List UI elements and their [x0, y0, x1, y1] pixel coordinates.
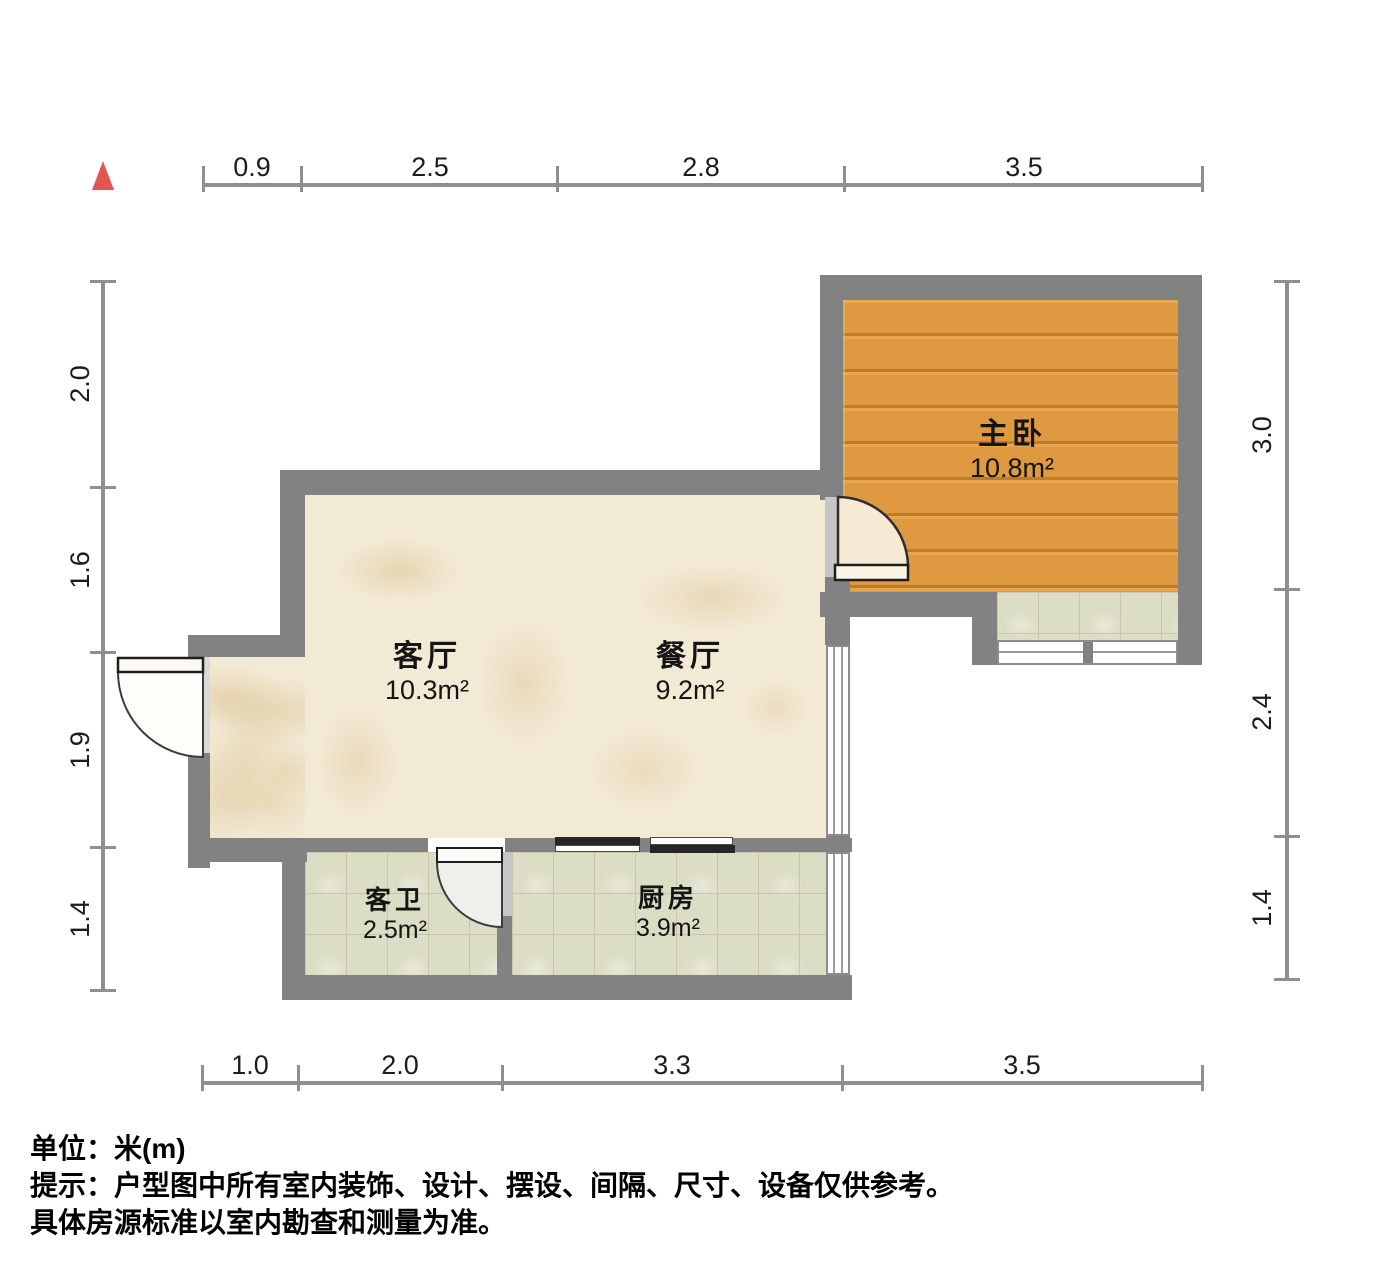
- dim-tick: [90, 989, 116, 992]
- wall-bathroom-left: [282, 860, 305, 975]
- sliding-door-panel: [555, 837, 640, 845]
- sliding-door-panel: [650, 845, 735, 853]
- sliding-door-panel: [650, 837, 733, 845]
- room-label-bathroom: 客卫 2.5m²: [325, 885, 465, 945]
- dim-label-bottom: 3.3: [640, 1051, 704, 1079]
- sliding-door-panel: [555, 845, 640, 852]
- footer-tip-line2: 具体房源标准以室内勘查和测量为准。: [30, 1204, 954, 1241]
- dim-label-right: 3.0: [1248, 403, 1276, 467]
- bedroom-bay-window: [997, 640, 1178, 665]
- kitchen-window: [826, 852, 850, 975]
- wall-bottom: [282, 975, 852, 1000]
- dim-tick: [841, 1065, 844, 1091]
- room-name: 客卫: [325, 885, 465, 915]
- room-area: 9.2m²: [610, 674, 770, 706]
- room-label-dining: 餐厅 9.2m²: [610, 640, 770, 706]
- room-area: 10.8m²: [932, 452, 1092, 484]
- dim-tick: [1274, 280, 1300, 283]
- dim-tick: [843, 166, 846, 192]
- room-name: 客厅: [347, 640, 507, 674]
- wall-living-left-upper: [280, 470, 305, 657]
- dim-tick: [1274, 588, 1300, 591]
- dim-tick: [90, 846, 116, 849]
- wall-bottom-left-band: [188, 838, 307, 862]
- dim-line-bottom: [202, 1081, 1202, 1085]
- wall-left-jog: [188, 635, 305, 657]
- room-label-living: 客厅 10.3m²: [347, 640, 507, 706]
- dim-label-left: 1.4: [66, 887, 94, 951]
- wall-living-top: [280, 470, 838, 495]
- entry-alcove-floor: [210, 657, 305, 838]
- unit-label: 单位：: [30, 1133, 114, 1164]
- room-name: 主卧: [932, 418, 1092, 452]
- dim-tick: [501, 1065, 504, 1091]
- dim-label-bottom: 1.0: [218, 1051, 282, 1079]
- dim-tick: [90, 651, 116, 654]
- dim-label-left: 1.6: [66, 538, 94, 602]
- dining-window: [826, 645, 850, 836]
- room-name: 厨房: [598, 883, 738, 913]
- north-indicator-icon: [92, 161, 114, 190]
- room-area: 2.5m²: [325, 915, 465, 945]
- dim-tick: [1201, 1065, 1204, 1091]
- dim-tick: [300, 166, 303, 192]
- dim-line-top: [203, 183, 1203, 187]
- dim-tick: [1274, 978, 1300, 981]
- wall-bedroom-top: [820, 275, 1202, 300]
- room-area: 10.3m²: [347, 674, 507, 706]
- dim-label-top: 0.9: [220, 153, 284, 181]
- room-label-bedroom: 主卧 10.8m²: [932, 418, 1092, 484]
- room-name: 餐厅: [610, 640, 770, 674]
- dim-label-left: 2.0: [66, 352, 94, 416]
- dim-tick: [1274, 835, 1300, 838]
- dim-label-top: 2.5: [398, 153, 462, 181]
- footer-tip-line1: 提示：户型图中所有室内装饰、设计、摆设、间隔、尺寸、设备仅供参考。: [30, 1167, 954, 1204]
- wall-bedroom-left: [820, 275, 843, 500]
- dim-label-top: 3.5: [992, 153, 1056, 181]
- dim-tick: [90, 280, 116, 283]
- bay-window-sill: [997, 592, 1178, 640]
- wall-dining-right-upper: [825, 577, 850, 645]
- room-label-kitchen: 厨房 3.9m²: [598, 883, 738, 943]
- dim-label-bottom: 2.0: [368, 1051, 432, 1079]
- bedroom-door-jamb: [825, 497, 837, 583]
- room-area: 3.9m²: [598, 913, 738, 943]
- footer-notes: 单位：米(m) 提示：户型图中所有室内装饰、设计、摆设、间隔、尺寸、设备仅供参考…: [30, 1130, 954, 1241]
- bathroom-door-opening: [428, 838, 505, 852]
- dim-tick: [1201, 166, 1204, 192]
- wall-bedroom-right: [1178, 275, 1202, 665]
- dim-line-left: [101, 281, 105, 991]
- dim-tick: [202, 166, 205, 192]
- dim-label-top: 2.8: [669, 153, 733, 181]
- dim-label-right: 2.4: [1248, 680, 1276, 744]
- dim-line-right: [1285, 281, 1289, 980]
- dim-label-bottom: 3.5: [990, 1051, 1054, 1079]
- dim-label-left: 1.9: [66, 718, 94, 782]
- dim-tick: [201, 1065, 204, 1091]
- dim-tick: [297, 1065, 300, 1091]
- wall-dining-right-seg: [826, 836, 850, 852]
- dim-tick: [556, 166, 559, 192]
- wall-bay-connector: [972, 617, 997, 665]
- dim-tick: [90, 486, 116, 489]
- dim-label-right: 1.4: [1248, 876, 1276, 940]
- wall-bath-kitchen-divider-upper: [497, 852, 512, 916]
- floorplan-canvas: 0.9 2.5 2.8 3.5 1.0 2.0 3.3 3.5 2.0 1.6 …: [0, 0, 1390, 1274]
- footer-unit-line: 单位：米(m): [30, 1130, 954, 1167]
- entry-door-opening: [188, 657, 210, 753]
- unit-value: 米(m): [114, 1133, 186, 1164]
